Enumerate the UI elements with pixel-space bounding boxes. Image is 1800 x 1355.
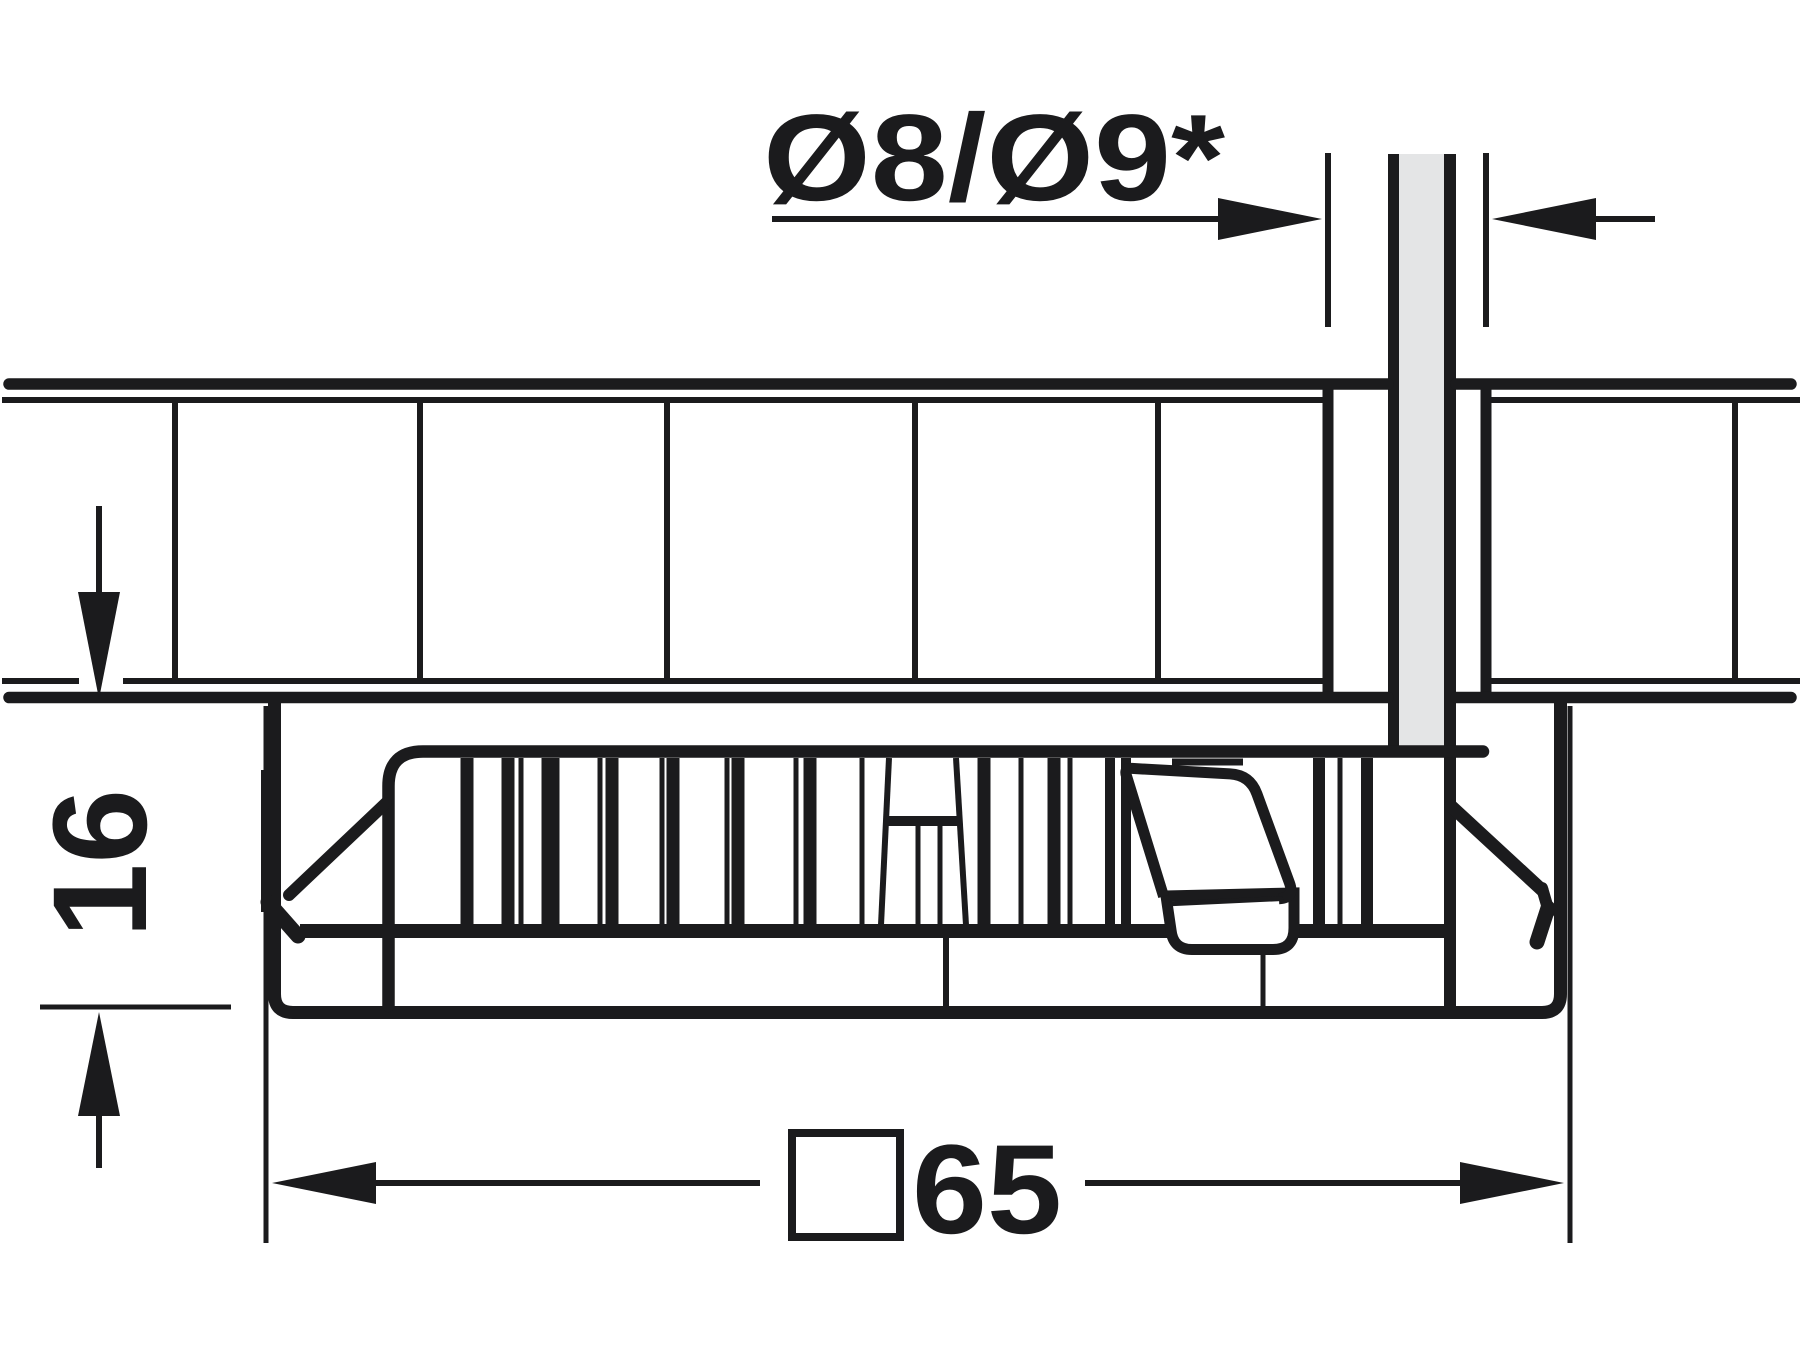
svg-text:16: 16 <box>26 789 175 938</box>
svg-text:65: 65 <box>912 1118 1062 1260</box>
svg-text:Ø8/Ø9*: Ø8/Ø9* <box>763 90 1225 227</box>
